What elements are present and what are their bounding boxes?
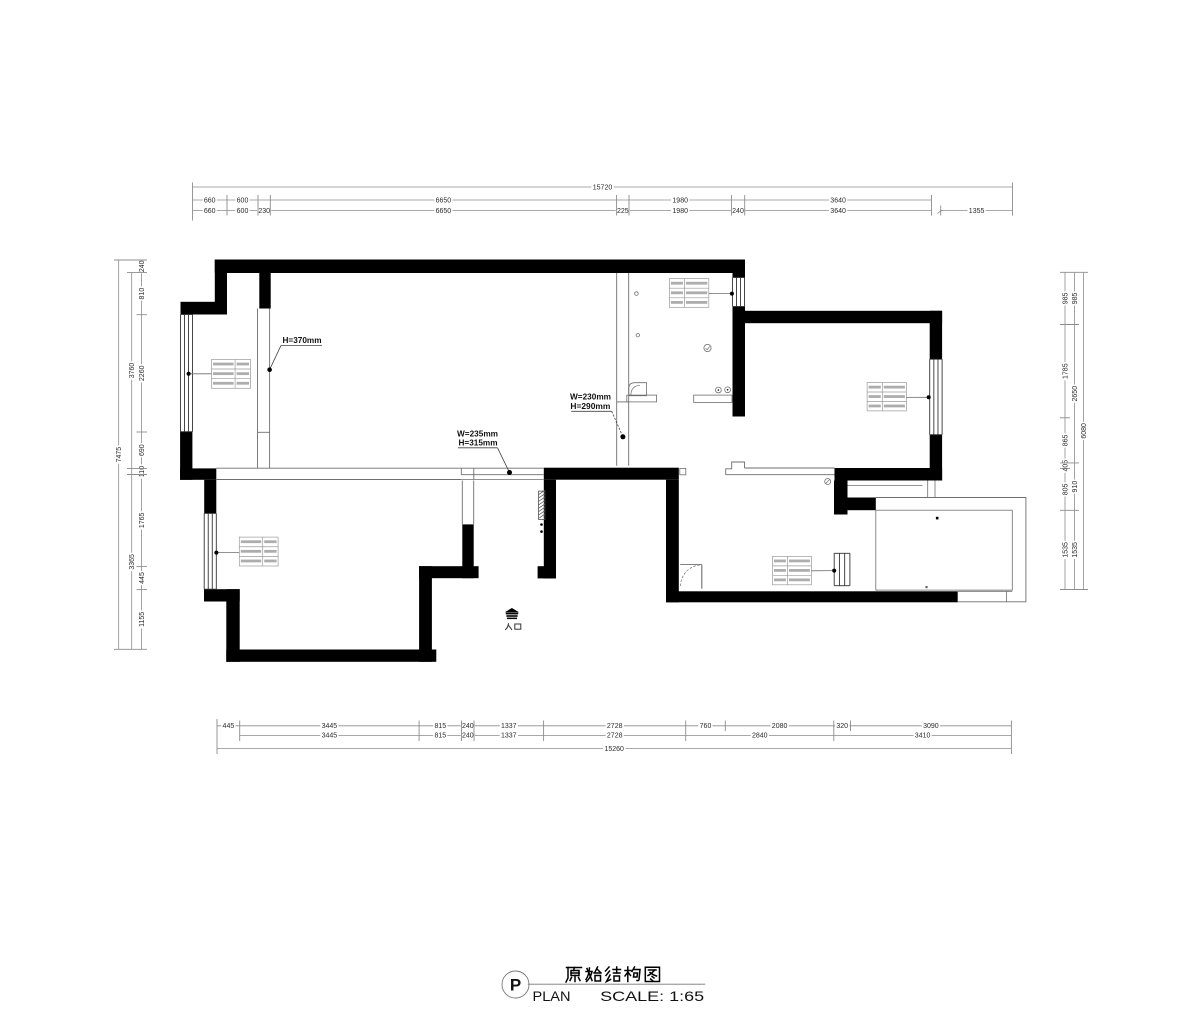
svg-text:110: 110 — [139, 466, 146, 477]
svg-text:2840: 2840 — [752, 733, 768, 740]
svg-text:230: 230 — [258, 208, 270, 215]
svg-text:1980: 1980 — [672, 197, 688, 204]
svg-text:910: 910 — [1072, 481, 1079, 493]
svg-text:660: 660 — [204, 208, 216, 215]
svg-text:3760: 3760 — [129, 363, 136, 379]
svg-text:760: 760 — [700, 723, 712, 730]
svg-text:1785: 1785 — [1062, 363, 1069, 379]
svg-text:240: 240 — [732, 208, 744, 215]
svg-text:SCALE: 1:65: SCALE: 1:65 — [600, 988, 704, 1004]
svg-text:H=370mm: H=370mm — [283, 335, 322, 345]
svg-text:H=315mm: H=315mm — [459, 438, 498, 448]
svg-text:600: 600 — [237, 208, 249, 215]
svg-text:P: P — [510, 976, 521, 995]
svg-text:320: 320 — [836, 723, 848, 730]
svg-text:2080: 2080 — [772, 723, 788, 730]
svg-text:6650: 6650 — [436, 208, 452, 215]
svg-text:3640: 3640 — [830, 208, 846, 215]
svg-text:225: 225 — [617, 208, 629, 215]
svg-text:3410: 3410 — [915, 733, 931, 740]
svg-text:445: 445 — [223, 723, 235, 730]
svg-text:15720: 15720 — [593, 184, 613, 191]
svg-text:815: 815 — [434, 723, 446, 730]
svg-text:1765: 1765 — [139, 513, 146, 529]
svg-text:3090: 3090 — [923, 723, 939, 730]
svg-text:3365: 3365 — [129, 554, 136, 570]
svg-text:1155: 1155 — [139, 612, 146, 627]
svg-text:805: 805 — [1062, 483, 1069, 495]
svg-text:1355: 1355 — [969, 208, 985, 215]
svg-text:1535: 1535 — [1062, 542, 1069, 558]
svg-text:600: 600 — [237, 197, 249, 204]
svg-text:240: 240 — [462, 723, 474, 730]
svg-text:7475: 7475 — [116, 447, 123, 463]
svg-text:865: 865 — [1062, 434, 1069, 446]
svg-text:985: 985 — [1072, 292, 1079, 304]
svg-text:445: 445 — [139, 572, 146, 584]
svg-text:6650: 6650 — [436, 197, 452, 204]
svg-text:2728: 2728 — [607, 723, 623, 730]
svg-text:PLAN: PLAN — [533, 988, 571, 1004]
svg-text:6080: 6080 — [1081, 423, 1088, 439]
svg-text:240: 240 — [462, 733, 474, 740]
svg-text:1535: 1535 — [1072, 542, 1079, 558]
svg-text:985: 985 — [1062, 292, 1069, 304]
svg-text:660: 660 — [204, 197, 216, 204]
svg-text:3445: 3445 — [322, 733, 338, 740]
svg-text:690: 690 — [139, 444, 146, 456]
svg-text:2260: 2260 — [139, 365, 146, 381]
svg-text:W=230mm: W=230mm — [570, 391, 611, 401]
svg-text:1980: 1980 — [672, 208, 688, 215]
svg-text:1337: 1337 — [501, 723, 517, 730]
svg-text:3640: 3640 — [830, 197, 846, 204]
svg-text:240: 240 — [139, 260, 146, 272]
svg-text:2728: 2728 — [607, 733, 623, 740]
svg-text:2650: 2650 — [1072, 386, 1079, 402]
svg-text:405: 405 — [1062, 460, 1069, 472]
svg-text:1337: 1337 — [501, 733, 517, 740]
svg-text:3445: 3445 — [322, 723, 338, 730]
svg-text:815: 815 — [434, 733, 446, 740]
svg-text:810: 810 — [139, 288, 146, 300]
svg-text:H=290mm: H=290mm — [570, 401, 610, 411]
svg-text:15260: 15260 — [604, 746, 624, 753]
